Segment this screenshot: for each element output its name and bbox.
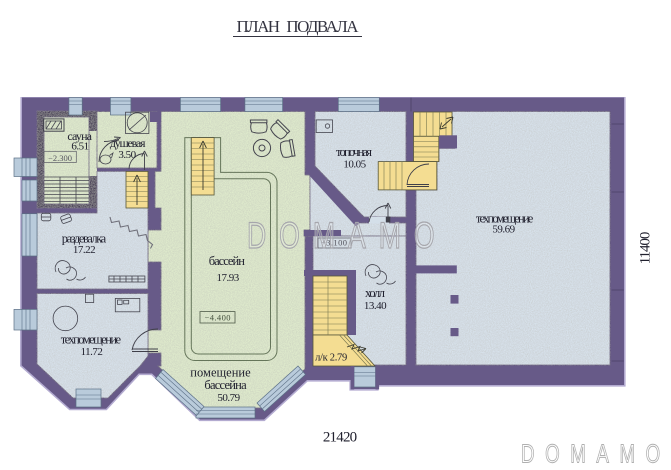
svg-text:17.22: 17.22 [73,244,95,256]
svg-text:топочная: топочная [336,145,372,159]
svg-text:59.69: 59.69 [492,224,515,236]
svg-text:50.79: 50.79 [217,392,240,404]
svg-text:3.50: 3.50 [118,149,136,161]
svg-text:ПЛАН ПОДВАЛА: ПЛАН ПОДВАЛА [237,17,360,36]
svg-text:л/к 2.79: л/к 2.79 [315,353,347,364]
svg-text:техпомещение: техпомещение [61,333,122,347]
svg-text:бассейн: бассейн [209,254,245,268]
svg-text:17.93: 17.93 [216,272,239,284]
svg-text:10.05: 10.05 [343,159,366,171]
svg-text:11.72: 11.72 [81,346,103,358]
svg-text:6.51: 6.51 [71,141,88,153]
svg-text:DOMAMO: DOMAMO [247,215,448,256]
svg-text:DOMAMO: DOMAMO [521,438,671,468]
svg-text:−4.400: −4.400 [205,313,231,323]
svg-text:−2.300: −2.300 [48,153,72,163]
svg-text:бассейна: бассейна [204,378,247,392]
svg-text:21420: 21420 [323,430,357,446]
svg-text:душевая: душевая [110,136,146,150]
svg-text:11400: 11400 [638,232,654,265]
svg-text:холл: холл [365,286,385,300]
svg-text:13.40: 13.40 [364,300,387,312]
